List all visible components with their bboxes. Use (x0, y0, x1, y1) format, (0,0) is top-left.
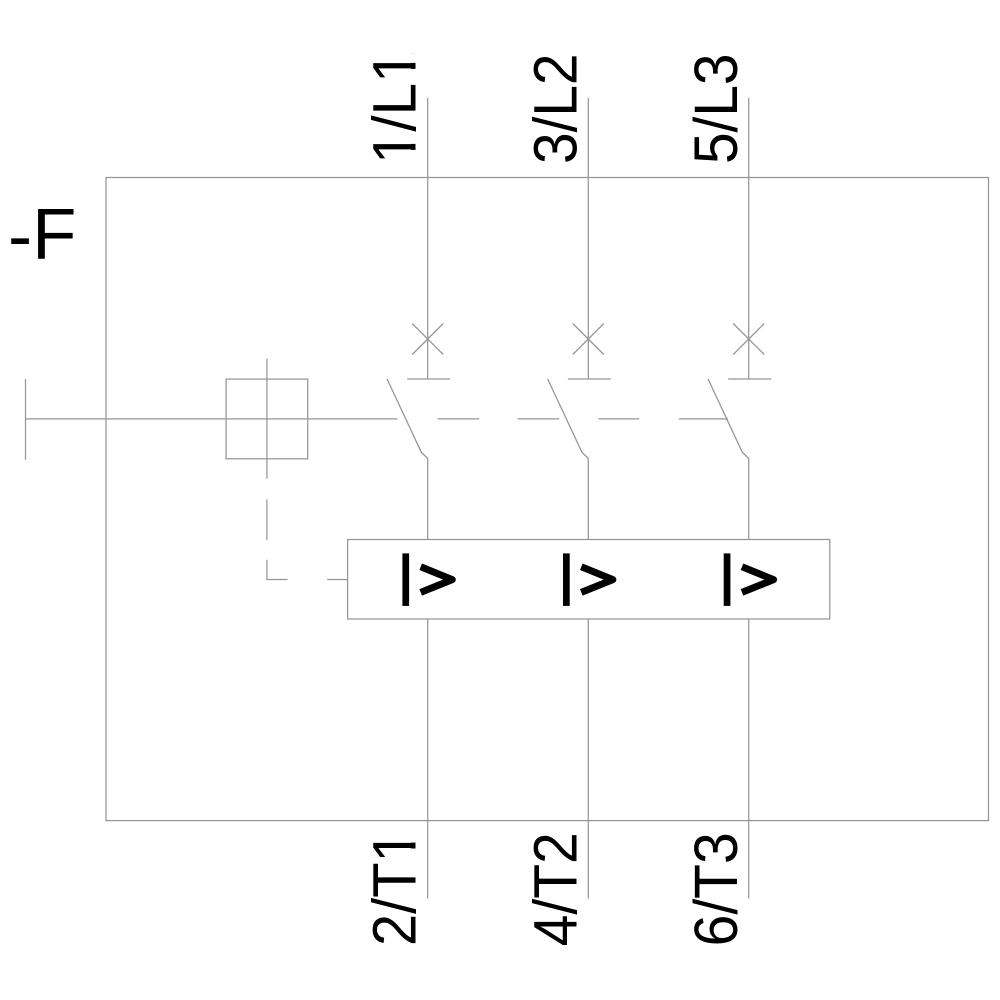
svg-text:6/T3: 6/T3 (682, 832, 751, 946)
svg-text:1/L1: 1/L1 (361, 51, 430, 165)
svg-text:4/T2: 4/T2 (522, 832, 591, 946)
svg-text:F: F (32, 193, 76, 274)
svg-text:-: - (8, 195, 32, 276)
svg-text:3/L2: 3/L2 (522, 54, 591, 165)
svg-text:5/L3: 5/L3 (682, 54, 751, 165)
svg-text:2/T1: 2/T1 (361, 830, 430, 946)
